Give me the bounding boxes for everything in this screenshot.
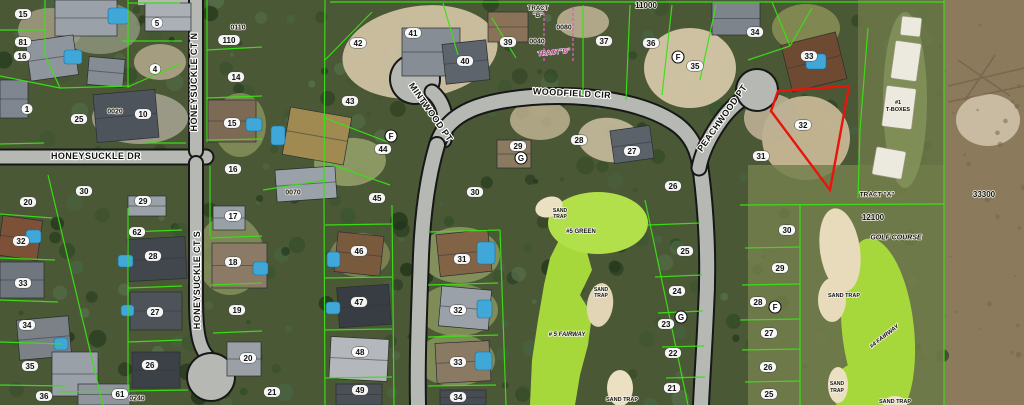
svg-text:25: 25 (75, 115, 84, 124)
lot-label-5[interactable]: 5 (151, 18, 162, 28)
lot-label-45[interactable]: 45 (369, 193, 386, 203)
svg-text:110: 110 (223, 36, 236, 45)
lot-label-29[interactable]: 29 (510, 141, 527, 151)
svg-text:25: 25 (681, 247, 690, 256)
swimming-pool (326, 302, 340, 314)
swimming-pool (253, 262, 268, 275)
house-roof (610, 125, 654, 163)
svg-text:41: 41 (409, 29, 418, 38)
svg-text:23: 23 (662, 320, 671, 329)
lot-label-26[interactable]: 26 (760, 362, 777, 372)
svg-text:31: 31 (757, 152, 766, 161)
lot-label-30[interactable]: 30 (76, 186, 93, 196)
area-label-0040: 0040 (529, 38, 545, 45)
lot-label-36[interactable]: 36 (643, 38, 660, 48)
svg-text:35: 35 (26, 362, 35, 371)
swimming-pool (475, 352, 492, 370)
lot-label-27[interactable]: 27 (147, 307, 164, 317)
svg-text:27: 27 (628, 147, 637, 156)
lot-label-10[interactable]: 10 (135, 109, 152, 119)
svg-text:29: 29 (514, 142, 523, 151)
svg-text:43: 43 (346, 97, 355, 106)
lot-label-44[interactable]: 44 (375, 144, 392, 154)
svg-text:32: 32 (17, 237, 26, 246)
svg-text:27: 27 (765, 329, 774, 338)
lot-label-25[interactable]: 25 (761, 389, 778, 399)
block-ring-f: F (385, 130, 397, 142)
svg-text:28: 28 (754, 298, 763, 307)
svg-text:15: 15 (228, 119, 237, 128)
area-label-11000: 11000 (635, 1, 657, 10)
lot-label-42[interactable]: 42 (350, 38, 367, 48)
area-label-0070: 0070 (285, 189, 301, 196)
area-label-golf-course: GOLF COURSE (870, 234, 922, 241)
svg-text:G: G (678, 313, 684, 322)
lot-label-15[interactable]: 15 (224, 118, 241, 128)
house-roof (282, 107, 351, 165)
lot-label-48[interactable]: 48 (352, 347, 369, 357)
lot-label-21[interactable]: 21 (264, 387, 281, 397)
house-roof (87, 56, 125, 87)
svg-text:30: 30 (80, 187, 89, 196)
lot-label-1[interactable]: 1 (21, 104, 32, 114)
svg-text:36: 36 (647, 39, 656, 48)
lot-label-61[interactable]: 61 (112, 389, 129, 399)
svg-text:27: 27 (151, 308, 160, 317)
lot-label-35[interactable]: 35 (22, 361, 39, 371)
lot-label-15[interactable]: 15 (15, 9, 32, 19)
svg-text:39: 39 (504, 38, 513, 47)
svg-text:1: 1 (25, 105, 30, 114)
svg-text:34: 34 (751, 28, 760, 37)
lot-label-27[interactable]: 27 (761, 328, 778, 338)
svg-text:28: 28 (149, 252, 158, 261)
svg-text:20: 20 (244, 354, 253, 363)
svg-text:61: 61 (116, 390, 125, 399)
lot-label-28[interactable]: 28 (571, 135, 588, 145)
svg-text:31: 31 (458, 255, 467, 264)
svg-text:16: 16 (18, 52, 27, 61)
svg-text:49: 49 (356, 386, 365, 395)
house-roof (275, 166, 337, 202)
svg-text:21: 21 (268, 388, 277, 397)
block-ring-f: F (672, 51, 684, 63)
block-ring-g: G (675, 311, 687, 323)
swimming-pool (477, 300, 492, 318)
lot-label-25[interactable]: 25 (71, 114, 88, 124)
lot-label-29[interactable]: 29 (772, 263, 789, 273)
svg-text:10: 10 (139, 110, 148, 119)
svg-text:30: 30 (783, 226, 792, 235)
svg-text:16: 16 (229, 165, 238, 174)
svg-text:F: F (676, 53, 681, 62)
lot-label-39[interactable]: 39 (500, 37, 517, 47)
lot-label-18[interactable]: 18 (225, 257, 242, 267)
area-label-5-fairway: # 5 FAIRWAY (549, 332, 587, 338)
svg-text:32: 32 (799, 121, 808, 130)
lot-label-33[interactable]: 33 (801, 51, 818, 61)
area-label-sand: SAND (830, 381, 845, 387)
map-viewport[interactable]: HONEYSUCKLE DRHONEYSUCKLE CT NHONEYSUCKL… (0, 0, 1024, 405)
area-label-5-green: #5 GREEN (566, 229, 596, 235)
street-label-honeysuckle-dr: HONEYSUCKLE DR (51, 151, 141, 161)
svg-text:48: 48 (356, 348, 365, 357)
svg-text:26: 26 (669, 182, 678, 191)
area-label-0240: 0240 (129, 395, 145, 402)
lot-label-34[interactable]: 34 (19, 320, 36, 330)
svg-text:33: 33 (805, 52, 814, 61)
lot-label-16[interactable]: 16 (14, 51, 31, 61)
swimming-pool (246, 118, 262, 131)
area-label-sand-trap: SAND TRAP (879, 399, 911, 405)
area-label-tract-a: TRACT "A" (860, 191, 895, 198)
lot-label-32[interactable]: 32 (13, 236, 30, 246)
tee-box-pad (872, 147, 906, 180)
lot-label-34[interactable]: 34 (747, 27, 764, 37)
svg-text:F: F (389, 132, 394, 141)
lot-label-16[interactable]: 16 (225, 164, 242, 174)
swimming-pool (108, 8, 128, 24)
lot-label-33[interactable]: 33 (15, 278, 32, 288)
lot-label-35[interactable]: 35 (687, 61, 704, 71)
lot-label-24[interactable]: 24 (669, 286, 686, 296)
svg-text:81: 81 (19, 38, 28, 47)
lot-label-41[interactable]: 41 (405, 28, 422, 38)
lot-label-22[interactable]: 22 (665, 348, 682, 358)
swimming-pool (118, 255, 133, 267)
area-label-sand-trap: SAND TRAP (606, 397, 638, 403)
svg-text:29: 29 (776, 264, 785, 273)
lot-label-26[interactable]: 26 (142, 360, 159, 370)
svg-text:30: 30 (471, 188, 480, 197)
area-label-12100: 12100 (862, 213, 885, 222)
svg-text:36: 36 (40, 392, 49, 401)
house-roof (329, 337, 389, 382)
svg-text:35: 35 (691, 62, 700, 71)
svg-text:17: 17 (229, 212, 238, 221)
lot-label-62[interactable]: 62 (129, 227, 146, 237)
svg-text:32: 32 (454, 306, 463, 315)
lot-label-43[interactable]: 43 (342, 96, 359, 106)
lot-label-32[interactable]: 32 (450, 305, 467, 315)
lot-label-28[interactable]: 28 (145, 251, 162, 261)
svg-text:G: G (518, 154, 524, 163)
area-label-0080: 0080 (556, 24, 572, 31)
lot-label-31[interactable]: 31 (753, 151, 770, 161)
block-ring-f: F (769, 301, 781, 313)
area-label-1: #1 (895, 100, 901, 106)
svg-text:28: 28 (575, 136, 584, 145)
lot-label-33[interactable]: 33 (450, 357, 467, 367)
lot-label-40[interactable]: 40 (457, 56, 474, 66)
svg-text:26: 26 (146, 361, 155, 370)
svg-text:18: 18 (229, 258, 238, 267)
lot-label-81[interactable]: 81 (15, 37, 32, 47)
lot-label-49[interactable]: 49 (352, 385, 369, 395)
svg-text:15: 15 (19, 10, 28, 19)
tee-box-pad (900, 16, 922, 37)
svg-text:14: 14 (232, 73, 241, 82)
svg-text:22: 22 (669, 349, 678, 358)
lot-label-29[interactable]: 29 (135, 196, 152, 206)
lot-label-17[interactable]: 17 (225, 211, 242, 221)
area-label-trap: TRAP (553, 214, 567, 220)
area-label-trap: TRAP (830, 388, 844, 394)
lot-label-21[interactable]: 21 (664, 383, 681, 393)
lot-label-19[interactable]: 19 (229, 305, 246, 315)
svg-text:4: 4 (153, 65, 158, 74)
svg-text:26: 26 (764, 363, 773, 372)
svg-text:29: 29 (139, 197, 148, 206)
lot-label-30[interactable]: 30 (779, 225, 796, 235)
lot-label-4[interactable]: 4 (149, 64, 160, 74)
lot-label-25[interactable]: 25 (677, 246, 694, 256)
svg-text:40: 40 (461, 57, 470, 66)
area-label-tract: TRACT (528, 6, 549, 12)
area-label-t-boxes: T-BOXES (886, 107, 910, 113)
area-label-0110: 0110 (230, 24, 245, 31)
house-roof (145, 3, 191, 31)
svg-text:F: F (773, 303, 778, 312)
lot-label-20[interactable]: 20 (20, 197, 37, 207)
svg-text:33: 33 (19, 279, 28, 288)
street-label-honeysuckle-ct-s: HONEYSUCKLE CT S (192, 231, 202, 329)
lot-label-110[interactable]: 110 (218, 35, 240, 45)
svg-text:33: 33 (454, 358, 463, 367)
svg-text:5: 5 (155, 19, 160, 28)
lot-label-46[interactable]: 46 (351, 246, 368, 256)
street-label-honeysuckle-ct-n: HONEYSUCKLE CT N (189, 33, 199, 132)
svg-text:24: 24 (673, 287, 682, 296)
svg-text:20: 20 (24, 198, 33, 207)
lot-label-37[interactable]: 37 (596, 36, 613, 46)
aerial-parcel-map[interactable]: HONEYSUCKLE DRHONEYSUCKLE CT NHONEYSUCKL… (0, 0, 1024, 405)
lot-label-32[interactable]: 32 (795, 120, 812, 130)
lot-label-28[interactable]: 28 (750, 297, 767, 307)
area-label-0020: 0020 (107, 108, 123, 115)
svg-text:25: 25 (765, 390, 774, 399)
area-label-sand-trap: SAND TRAP (828, 293, 860, 299)
lot-label-36[interactable]: 36 (36, 391, 53, 401)
lot-label-34[interactable]: 34 (450, 392, 467, 402)
swimming-pool (327, 252, 340, 267)
lot-label-31[interactable]: 31 (454, 254, 471, 264)
lot-label-47[interactable]: 47 (351, 297, 368, 307)
area-label-b: "B" (533, 13, 543, 19)
svg-text:42: 42 (354, 39, 363, 48)
svg-text:46: 46 (355, 247, 364, 256)
svg-text:19: 19 (233, 306, 242, 315)
house-roof (132, 352, 180, 388)
swimming-pool (271, 126, 285, 145)
lot-label-14[interactable]: 14 (228, 72, 245, 82)
swimming-pool (477, 242, 495, 264)
block-ring-g: G (515, 152, 527, 164)
lot-label-20[interactable]: 20 (240, 353, 257, 363)
swimming-pool (64, 50, 82, 64)
tee-box-pad (890, 40, 921, 81)
svg-text:62: 62 (133, 228, 142, 237)
svg-text:47: 47 (355, 298, 364, 307)
svg-text:37: 37 (600, 37, 609, 46)
lot-label-27[interactable]: 27 (624, 146, 641, 156)
lot-label-26[interactable]: 26 (665, 181, 682, 191)
svg-text:45: 45 (373, 194, 382, 203)
svg-text:34: 34 (454, 393, 463, 402)
lot-label-30[interactable]: 30 (467, 187, 484, 197)
area-label-trap: TRAP (594, 293, 608, 299)
svg-text:21: 21 (668, 384, 677, 393)
svg-text:34: 34 (23, 321, 32, 330)
area-label-33300: 33300 (973, 190, 996, 199)
svg-text:44: 44 (379, 145, 388, 154)
lot-label-23[interactable]: 23 (658, 319, 675, 329)
